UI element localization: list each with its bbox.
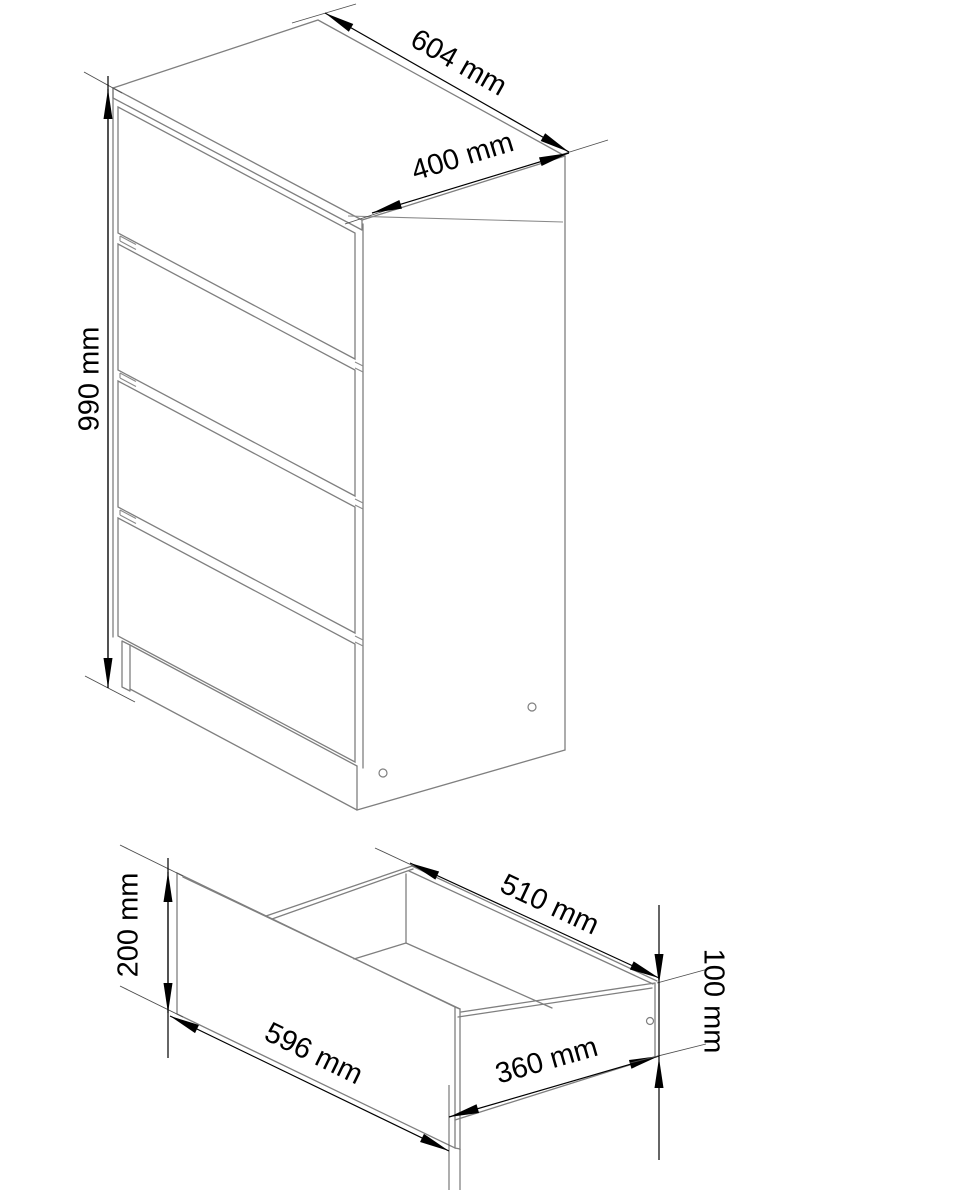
arrowhead	[655, 954, 664, 984]
arrowhead	[449, 1104, 479, 1117]
drawer-isometric-view: 200 mm 596 mm 510 mm 360 mm 100 mm	[113, 845, 730, 1190]
technical-drawing-canvas: 604 mm 400 mm 990 mm	[0, 0, 963, 1200]
drawer-bottom-interior	[354, 943, 552, 1008]
chest-carcass-edges	[113, 88, 565, 768]
dimension-top-width-604: 604 mm	[292, 4, 608, 161]
chest-of-drawers-isometric-view: 604 mm 400 mm 990 mm	[74, 4, 608, 810]
arrowhead	[104, 89, 113, 119]
chest-drawer-front-3	[118, 381, 355, 633]
dimension-side-height-100: 100 mm	[630, 905, 729, 1160]
dim-label-side-depth: 360 mm	[492, 1031, 602, 1091]
cam-hole-marker	[379, 769, 387, 777]
dim-label-top-width: 604 mm	[405, 23, 512, 102]
diagram-page: 604 mm 400 mm 990 mm	[0, 0, 963, 1200]
arrowhead	[325, 13, 353, 32]
chest-drawer-front-4	[118, 518, 355, 762]
chest-drawer-front-2	[118, 244, 355, 496]
arrowhead	[541, 133, 569, 152]
arrowhead	[170, 1016, 199, 1033]
drawer-left-side-top-edge	[266, 866, 413, 919]
arrowhead	[410, 863, 439, 880]
dim-label-top-depth: 400 mm	[408, 126, 518, 187]
chest-drawer-gap-reveals-right	[355, 362, 363, 646]
cam-hole-marker	[647, 1018, 654, 1025]
arrowhead	[372, 200, 402, 213]
dimension-front-width-596: 596 mm	[170, 1016, 460, 1190]
cam-hole-marker	[528, 703, 536, 711]
dim-label-height: 990 mm	[74, 327, 106, 432]
dimension-height-990: 990 mm	[74, 72, 135, 702]
dimension-side-depth-360: 360 mm	[449, 1031, 659, 1117]
chest-drawer-front-1	[118, 107, 355, 359]
arrowhead	[655, 1058, 664, 1088]
dim-label-side-height: 100 mm	[697, 949, 729, 1054]
chest-top-panel	[113, 20, 565, 230]
dim-label-front-height: 200 mm	[113, 873, 145, 978]
arrowhead	[104, 658, 113, 688]
chest-drawer-gap-reveals-left	[120, 236, 136, 524]
dimension-top-depth-400: 400 mm	[345, 126, 569, 224]
arrowhead	[164, 872, 173, 902]
drawer-front-panel	[177, 873, 460, 1149]
dimension-front-height-200: 200 mm	[113, 845, 183, 1058]
chest-plinth-and-foot	[122, 641, 565, 810]
dimension-back-width-510: 510 mm	[375, 848, 659, 978]
